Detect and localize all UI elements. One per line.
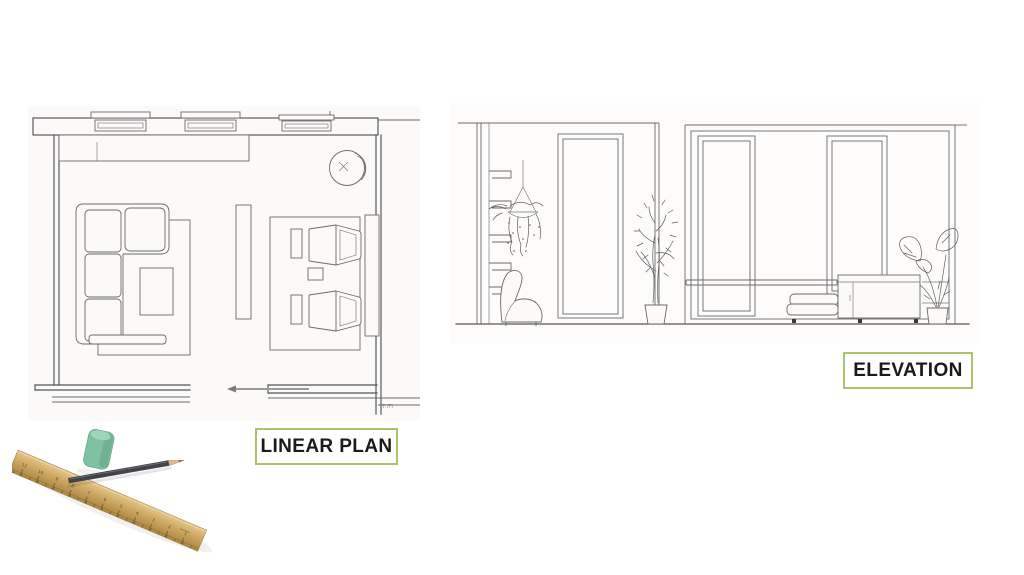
linear-plan-label: LINEAR PLAN — [255, 428, 398, 465]
ruler: 11 10 9 8 7 6 5 4 3 2 1 — [12, 450, 207, 551]
elevation-drawing — [450, 103, 980, 343]
plan-sideboard — [365, 215, 379, 336]
slide: T.ITI — [0, 0, 1024, 575]
linear-plan-drawing: T.ITI — [28, 106, 420, 421]
elevation-label: ELEVATION — [843, 352, 973, 389]
plan-media-console — [236, 205, 251, 319]
plan-side-table — [291, 295, 302, 324]
plan-corner-note: T.ITI — [381, 404, 393, 410]
plan-console — [59, 135, 249, 161]
elevation-label-text: ELEVATION — [853, 360, 963, 382]
drawing-tools-photo: 11 10 9 8 7 6 5 4 3 2 1 — [12, 420, 230, 560]
plan-windows — [91, 112, 334, 131]
plan-small-table — [308, 268, 323, 280]
linear-plan-label-text: LINEAR PLAN — [260, 436, 392, 458]
plan-coffee-table — [140, 268, 173, 315]
plan-side-table — [291, 229, 302, 258]
